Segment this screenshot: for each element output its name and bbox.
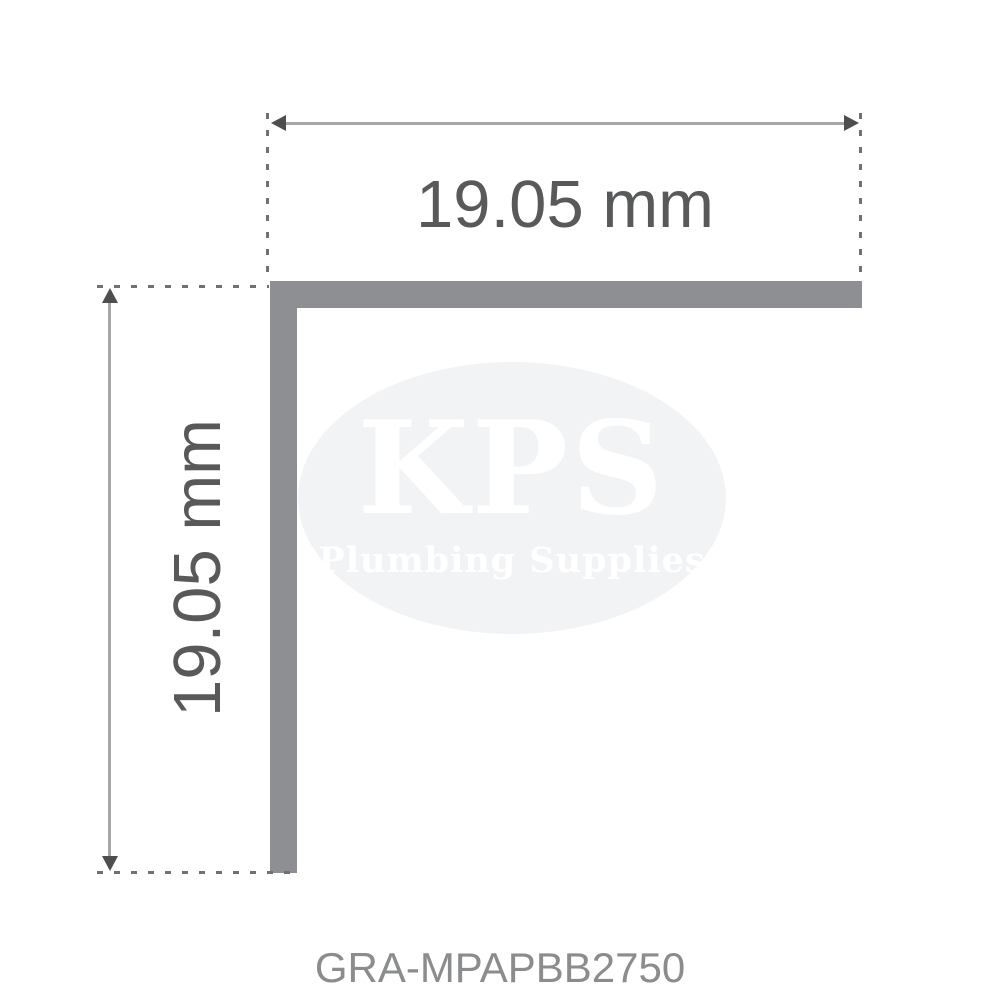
arrowhead-right-icon: [844, 115, 859, 131]
top-dimension-extension-line-right: [859, 113, 862, 280]
left-dimension-extension-line-bottom: [97, 871, 298, 874]
top-dimension-line: [283, 122, 847, 125]
watermark-brand-text: KPS: [358, 405, 667, 533]
arrowhead-down-icon: [102, 856, 118, 871]
left-dimension-label: 19.05 mm: [163, 368, 233, 768]
brand-watermark: KPS Plumbing Supplies: [298, 362, 726, 634]
arrowhead-left-icon: [271, 115, 286, 131]
watermark-tagline-text: Plumbing Supplies: [318, 543, 705, 578]
arrowhead-up-icon: [102, 288, 118, 303]
left-dimension-extension-line-top: [97, 285, 269, 288]
product-code: GRA-MPAPBB2750: [0, 940, 1000, 996]
top-dimension-extension-line-left: [266, 113, 269, 280]
top-dimension-label: 19.05 mm: [365, 170, 765, 240]
left-dimension-line: [108, 300, 111, 858]
product-diagram-canvas: KPS Plumbing Supplies 19.05 mm 19.05 mm …: [0, 0, 1000, 1000]
profile-vertical-leg: [270, 281, 297, 873]
profile-horizontal-leg: [270, 281, 862, 308]
